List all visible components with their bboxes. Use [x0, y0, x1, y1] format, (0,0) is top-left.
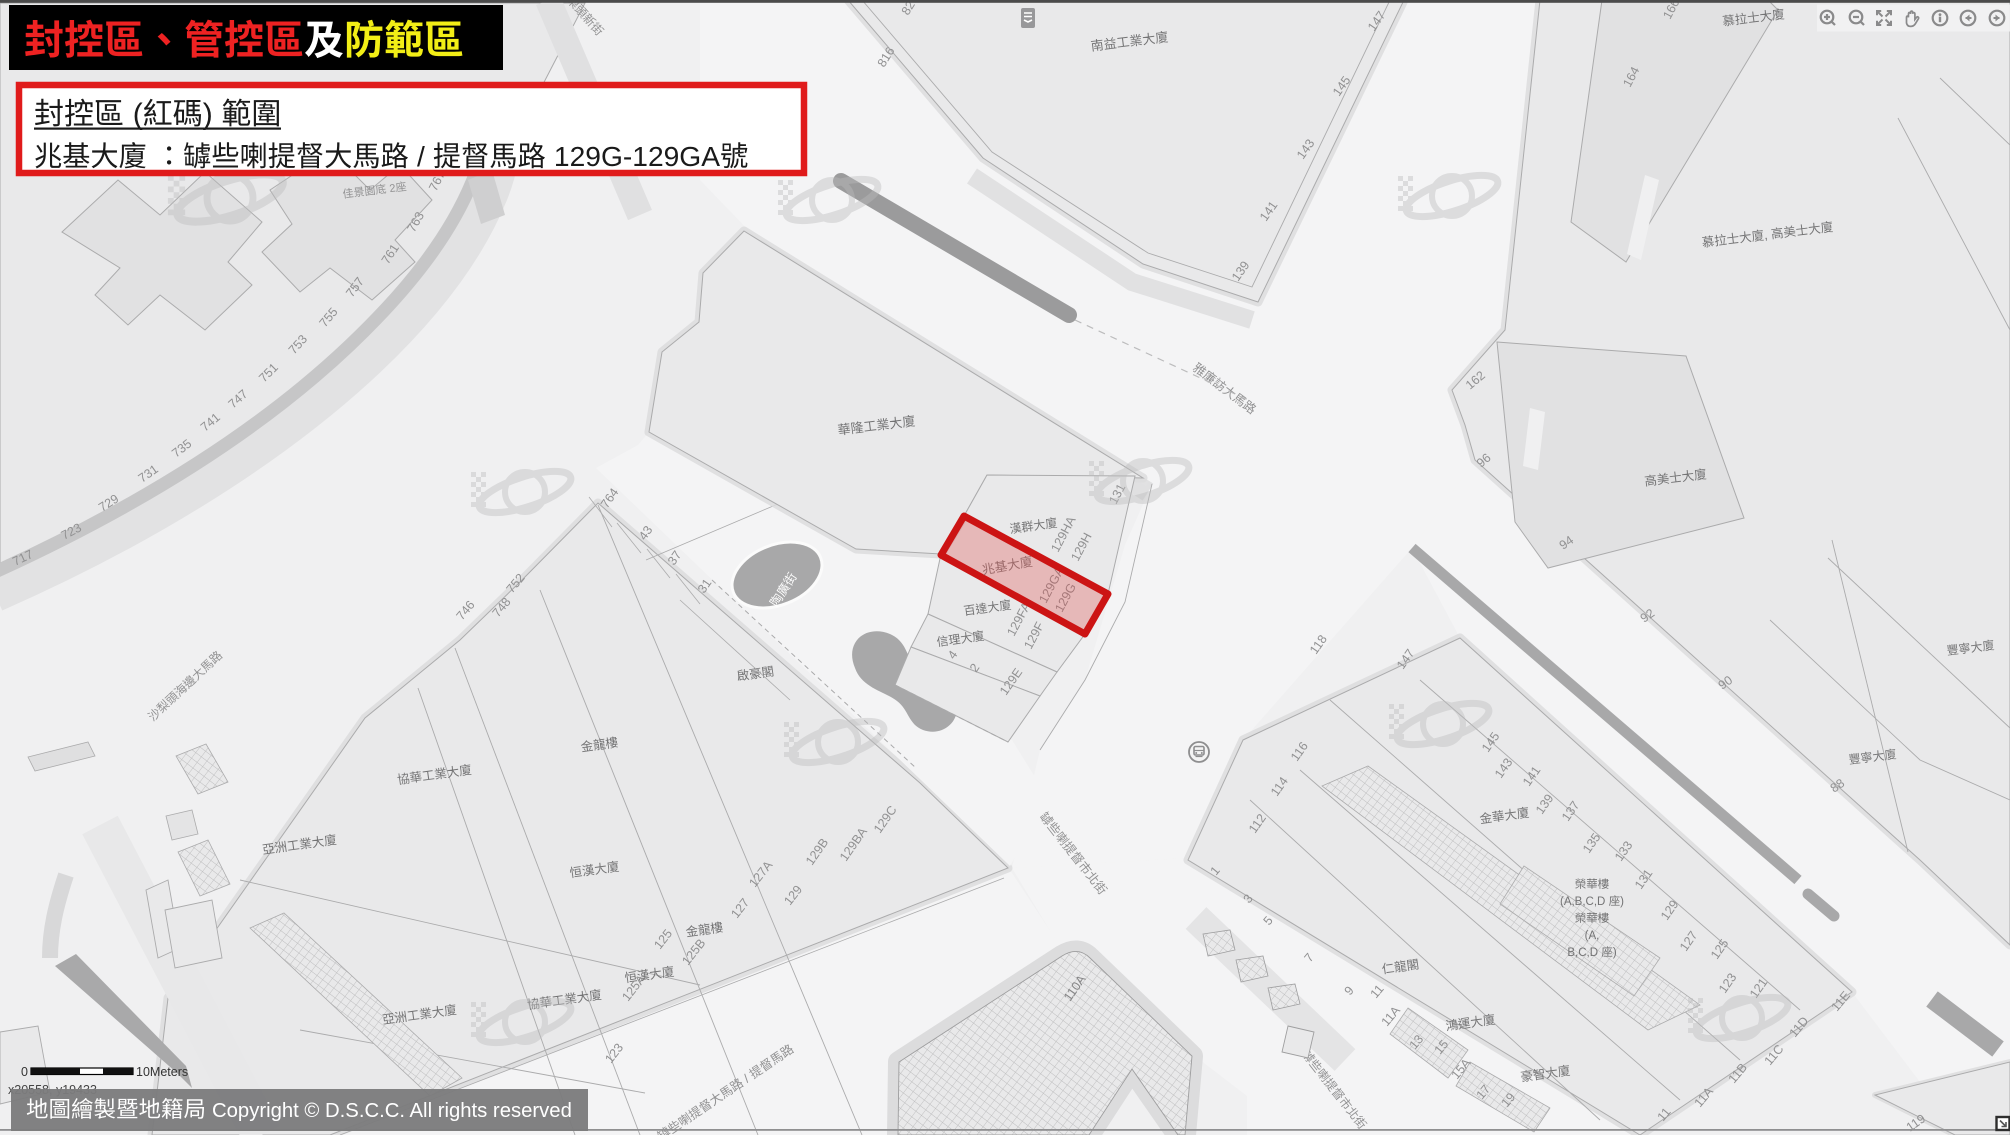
svg-text:10Meters: 10Meters [136, 1065, 188, 1079]
svg-text:129G-129GA: 129G-129GA [554, 140, 720, 172]
svg-text:): ) [1613, 947, 1617, 959]
svg-text:0: 0 [21, 1065, 28, 1079]
svg-text:): ) [203, 98, 213, 131]
svg-text:(A,: (A, [1585, 930, 1600, 942]
svg-text:(A,B,C,D: (A,B,C,D [1560, 896, 1605, 908]
svg-text:): ) [1620, 896, 1624, 908]
svg-text:B,C,D: B,C,D [1567, 947, 1598, 959]
svg-text:/: / [417, 140, 425, 172]
svg-text:(: ( [133, 98, 143, 131]
svg-text:Copyright © D.S.C.C. All right: Copyright © D.S.C.C. All rights reserved [212, 1100, 572, 1122]
